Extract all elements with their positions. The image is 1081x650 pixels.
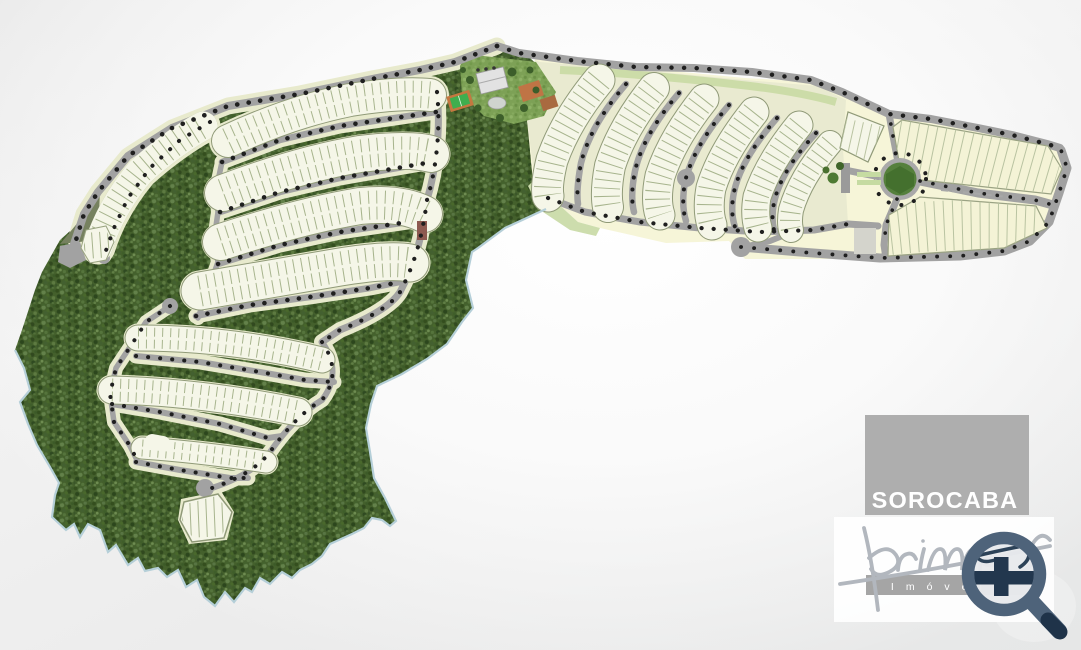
svg-text:SOROCABA: SOROCABA [872, 487, 1019, 513]
